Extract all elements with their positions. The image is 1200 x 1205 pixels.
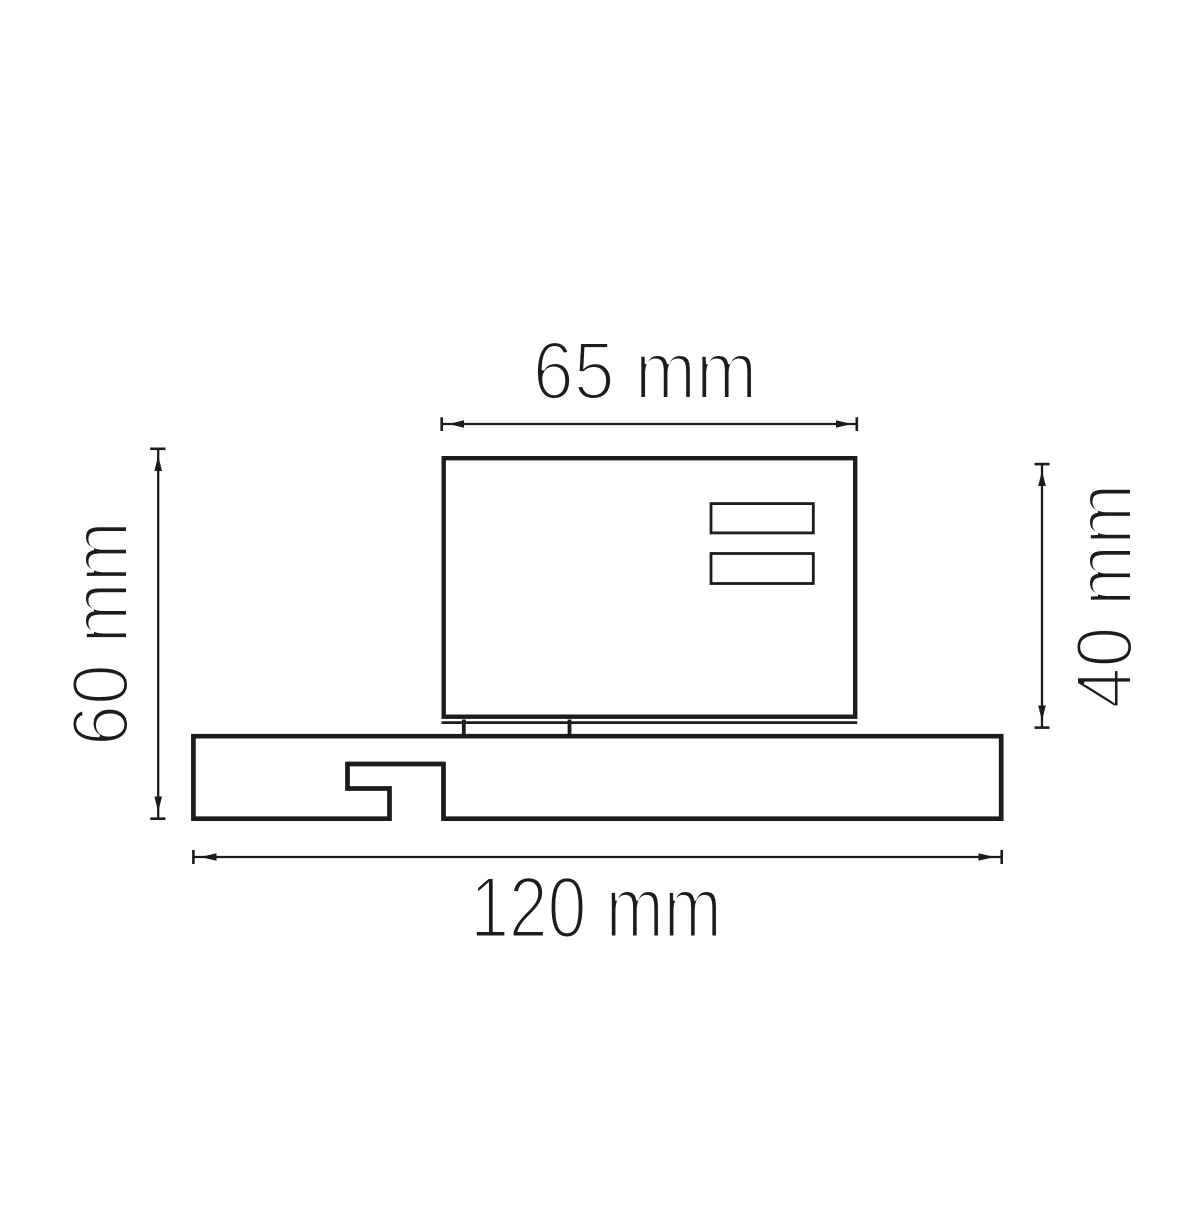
svg-text:65 mm: 65 mm bbox=[533, 326, 757, 417]
svg-text:120 mm: 120 mm bbox=[470, 859, 722, 956]
svg-text:60 mm: 60 mm bbox=[56, 521, 146, 746]
svg-text:40 mm: 40 mm bbox=[1060, 484, 1150, 709]
